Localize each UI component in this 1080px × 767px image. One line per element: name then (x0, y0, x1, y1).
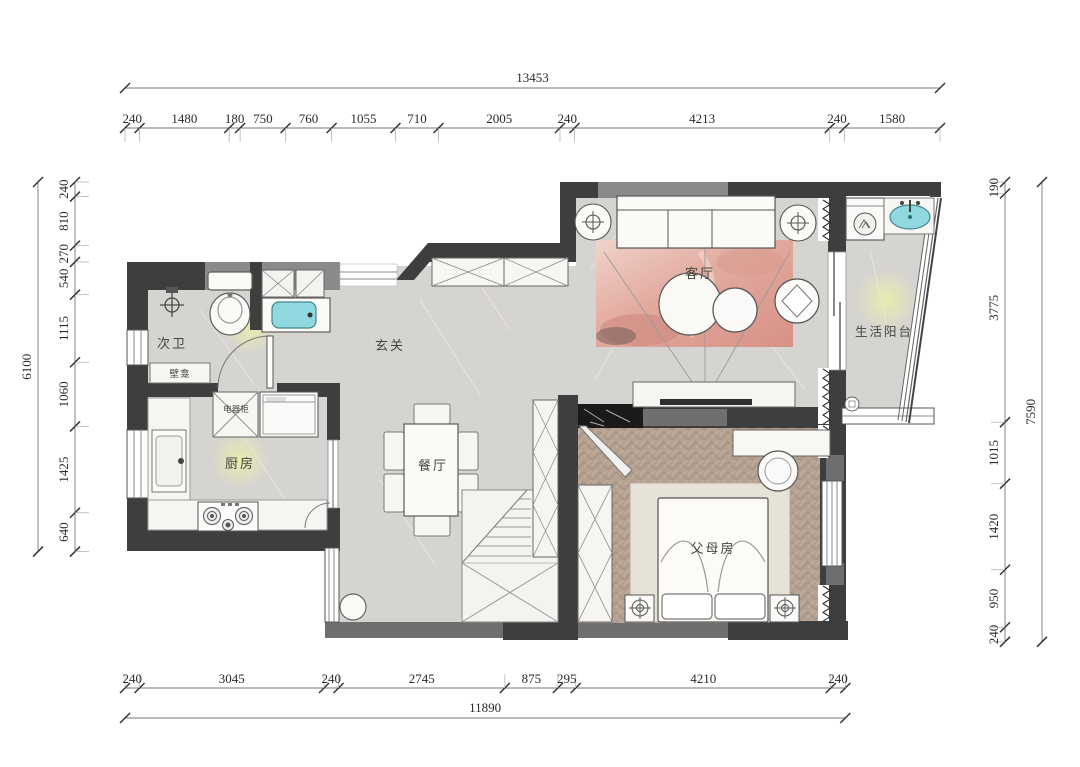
wall-left (127, 262, 148, 551)
room-label-appliance-cabinet: 电器柜 (223, 404, 249, 415)
dim-total: 6100 (19, 354, 34, 380)
armchair (775, 279, 819, 323)
dim-value: 240 (828, 671, 848, 686)
floor-plan: 2401480180750760105571020052404213240158… (0, 0, 1080, 767)
bed (658, 498, 768, 622)
tv-console (633, 382, 795, 407)
sofa (617, 196, 775, 248)
desk-chair (758, 451, 798, 491)
dim-chain-left: 2408102705401115106014256406100 (19, 177, 89, 557)
room-label-bathroom: 次卫 (157, 336, 187, 352)
dim-value: 710 (407, 111, 427, 126)
room-label-balcony: 生活阳台 (855, 324, 913, 339)
dining-chair (414, 404, 450, 424)
dim-value: 875 (522, 671, 542, 686)
dim-value: 240 (557, 111, 577, 126)
bedroom-door-threshold (578, 404, 643, 428)
dining-chair (384, 474, 404, 512)
window-bedroom-east (822, 481, 842, 566)
wall-bedroom-south-dark (728, 621, 848, 640)
gas-stove (198, 502, 258, 531)
dim-value: 180 (225, 111, 245, 126)
pillow (715, 594, 765, 619)
dim-value: 1425 (56, 457, 71, 483)
dim-value: 1060 (56, 381, 71, 407)
dim-value: 640 (56, 522, 71, 542)
foyer-stool (340, 594, 366, 620)
dim-value: 1480 (171, 111, 197, 126)
dim-value: 1580 (879, 111, 905, 126)
shoe-cabinet (432, 258, 568, 286)
room-label-living: 客厅 (685, 266, 715, 282)
dim-value: 240 (986, 625, 1001, 645)
wardrobe (578, 485, 612, 622)
dining-chair (384, 432, 404, 470)
wall-kitchen-east-a (327, 390, 340, 440)
dim-value: 950 (986, 589, 1001, 609)
dining-chair (414, 516, 450, 536)
kitchen-sink (152, 430, 186, 492)
dim-value: 1055 (351, 111, 377, 126)
dim-value: 1115 (56, 316, 71, 341)
dim-value: 760 (299, 111, 319, 126)
side-table-right (780, 205, 816, 241)
dim-value: 1015 (986, 440, 1001, 466)
room-label-foyer: 玄关 (375, 339, 405, 354)
dim-value: 270 (56, 244, 71, 264)
nightstand-left (625, 595, 654, 622)
nightstand-right (770, 595, 799, 622)
room-label-dining: 餐厅 (418, 458, 448, 474)
side-table-left (575, 204, 611, 240)
room-label-parents-bedroom: 父母房 (690, 541, 735, 557)
dim-value: 3775 (986, 295, 1001, 321)
dim-value: 240 (123, 671, 143, 686)
dim-value: 3045 (219, 671, 245, 686)
floor-drain (845, 397, 859, 411)
tv (660, 399, 752, 405)
dim-chain-bottom: 24030452402745875295421024011890 (120, 671, 850, 723)
pillow (662, 594, 712, 619)
dim-value: 540 (56, 269, 71, 289)
dim-total: 7590 (1023, 399, 1038, 425)
dim-value: 240 (123, 111, 143, 126)
wall-kitchen-south (127, 530, 340, 551)
dim-total: 13453 (516, 70, 549, 85)
window-dining-west (325, 548, 339, 622)
coffee-table-small (713, 288, 757, 332)
dining-chair (458, 432, 478, 470)
wall-bedroom-south-gray (578, 623, 728, 638)
dim-value: 4210 (690, 671, 716, 686)
wall-bath-south-a (127, 383, 218, 397)
window-bath-left (127, 330, 148, 365)
wall-living-west (560, 198, 576, 243)
refrigerator (260, 392, 318, 437)
wall-bath-divider (250, 262, 262, 330)
dim-total: 11890 (469, 700, 501, 715)
washing-machine (846, 198, 884, 240)
floor-plan-drawing: 2401480180750760105571020052404213240158… (0, 0, 1080, 767)
room-label-niche: 壁龛 (169, 368, 190, 380)
stair-cabinet (533, 400, 558, 557)
wall-top-balcony (846, 182, 941, 196)
wall-kitchen-east-b (327, 508, 340, 532)
dim-value: 2745 (409, 671, 435, 686)
dim-value: 190 (986, 178, 1001, 198)
toilet (208, 272, 252, 335)
room-label-kitchen: 厨房 (225, 456, 255, 472)
wall-living-bedroom-gray (643, 409, 727, 426)
coffee-table-large (659, 273, 721, 335)
balcony-sliding-door (828, 252, 846, 370)
wall-bottom-gray (325, 622, 503, 638)
dim-value: 295 (557, 671, 577, 686)
dim-value: 4213 (689, 111, 715, 126)
balcony-sink-counter (884, 198, 934, 234)
dim-value: 240 (827, 111, 847, 126)
wall-stairs-east (558, 395, 578, 622)
wall-bottom-dark (503, 622, 578, 640)
dim-value: 240 (56, 180, 71, 200)
wall-bedroom-east-gray-a (826, 455, 844, 481)
dim-value: 750 (253, 111, 273, 126)
dim-value: 810 (56, 211, 71, 231)
dim-chain-top: 2401480180750760105571020052404213240158… (120, 70, 945, 142)
duct-shafts (262, 270, 324, 297)
bathroom-vanity (262, 298, 330, 332)
window-kitchen-left (127, 430, 148, 498)
dim-chain-right: 1903775101514209502407590 (986, 177, 1047, 647)
dim-value: 240 (322, 671, 342, 686)
dim-value: 1420 (986, 514, 1001, 540)
dim-value: 2005 (486, 111, 512, 126)
window-bath-top-transom (340, 264, 397, 286)
